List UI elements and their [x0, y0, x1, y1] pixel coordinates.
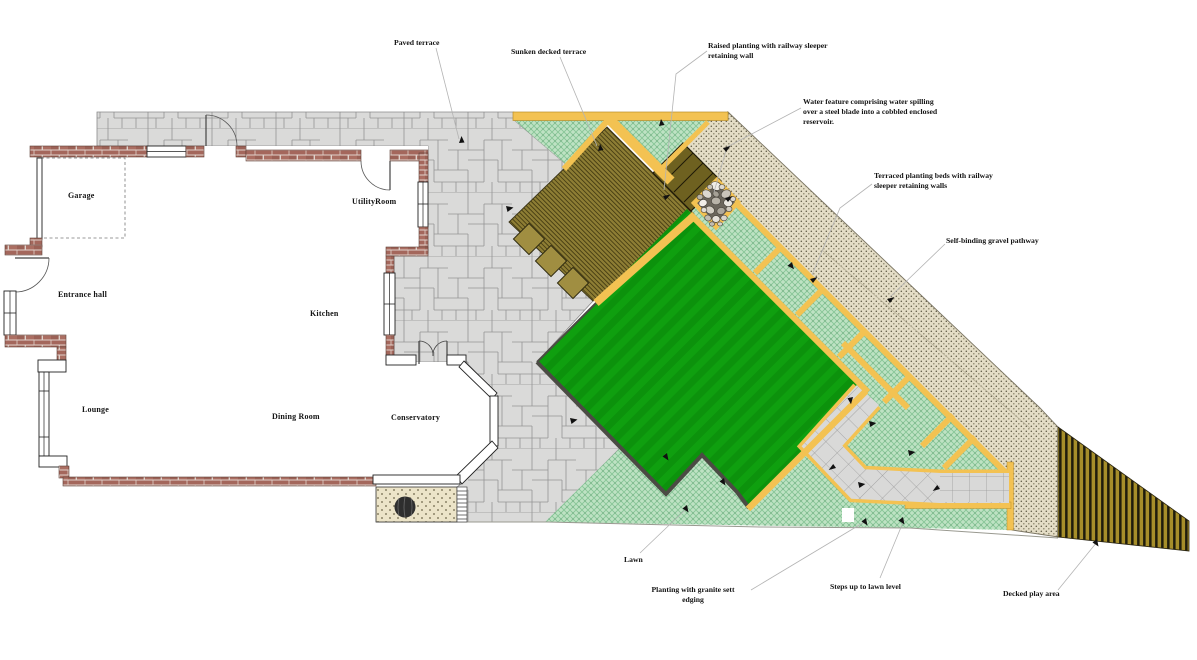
svg-text:Self-binding gravel pathway: Self-binding gravel pathway	[946, 236, 1039, 245]
svg-text:Lounge: Lounge	[82, 405, 109, 414]
svg-text:Paved terrace: Paved terrace	[394, 38, 440, 47]
svg-text:Lawn: Lawn	[624, 555, 644, 564]
svg-text:Terraced planting beds with ra: Terraced planting beds with railway	[874, 171, 993, 180]
svg-text:Planting with granite sett: Planting with granite sett	[651, 585, 735, 594]
svg-text:over a steel blade into a cobb: over a steel blade into a cobbled enclos…	[803, 107, 938, 116]
svg-text:sleeper retaining walls: sleeper retaining walls	[874, 181, 947, 190]
svg-text:Raised planting with railway s: Raised planting with railway sleeper	[708, 41, 828, 50]
svg-text:retaining wall: retaining wall	[708, 51, 753, 60]
svg-text:Decked play area: Decked play area	[1003, 589, 1060, 598]
svg-text:Entrance hall: Entrance hall	[58, 290, 108, 299]
svg-text:Water feature comprising water: Water feature comprising water spilling	[803, 97, 934, 106]
svg-text:reservoir.: reservoir.	[803, 117, 834, 126]
svg-text:Steps up to lawn level: Steps up to lawn level	[830, 582, 901, 591]
svg-text:Conservatory: Conservatory	[391, 413, 440, 422]
svg-text:edging: edging	[682, 595, 704, 604]
svg-text:Garage: Garage	[68, 191, 95, 200]
svg-text:UtilityRoom: UtilityRoom	[352, 197, 397, 206]
svg-text:Sunken decked terrace: Sunken decked terrace	[511, 47, 587, 56]
svg-text:Dining Room: Dining Room	[272, 412, 320, 421]
svg-text:Kitchen: Kitchen	[310, 309, 339, 318]
